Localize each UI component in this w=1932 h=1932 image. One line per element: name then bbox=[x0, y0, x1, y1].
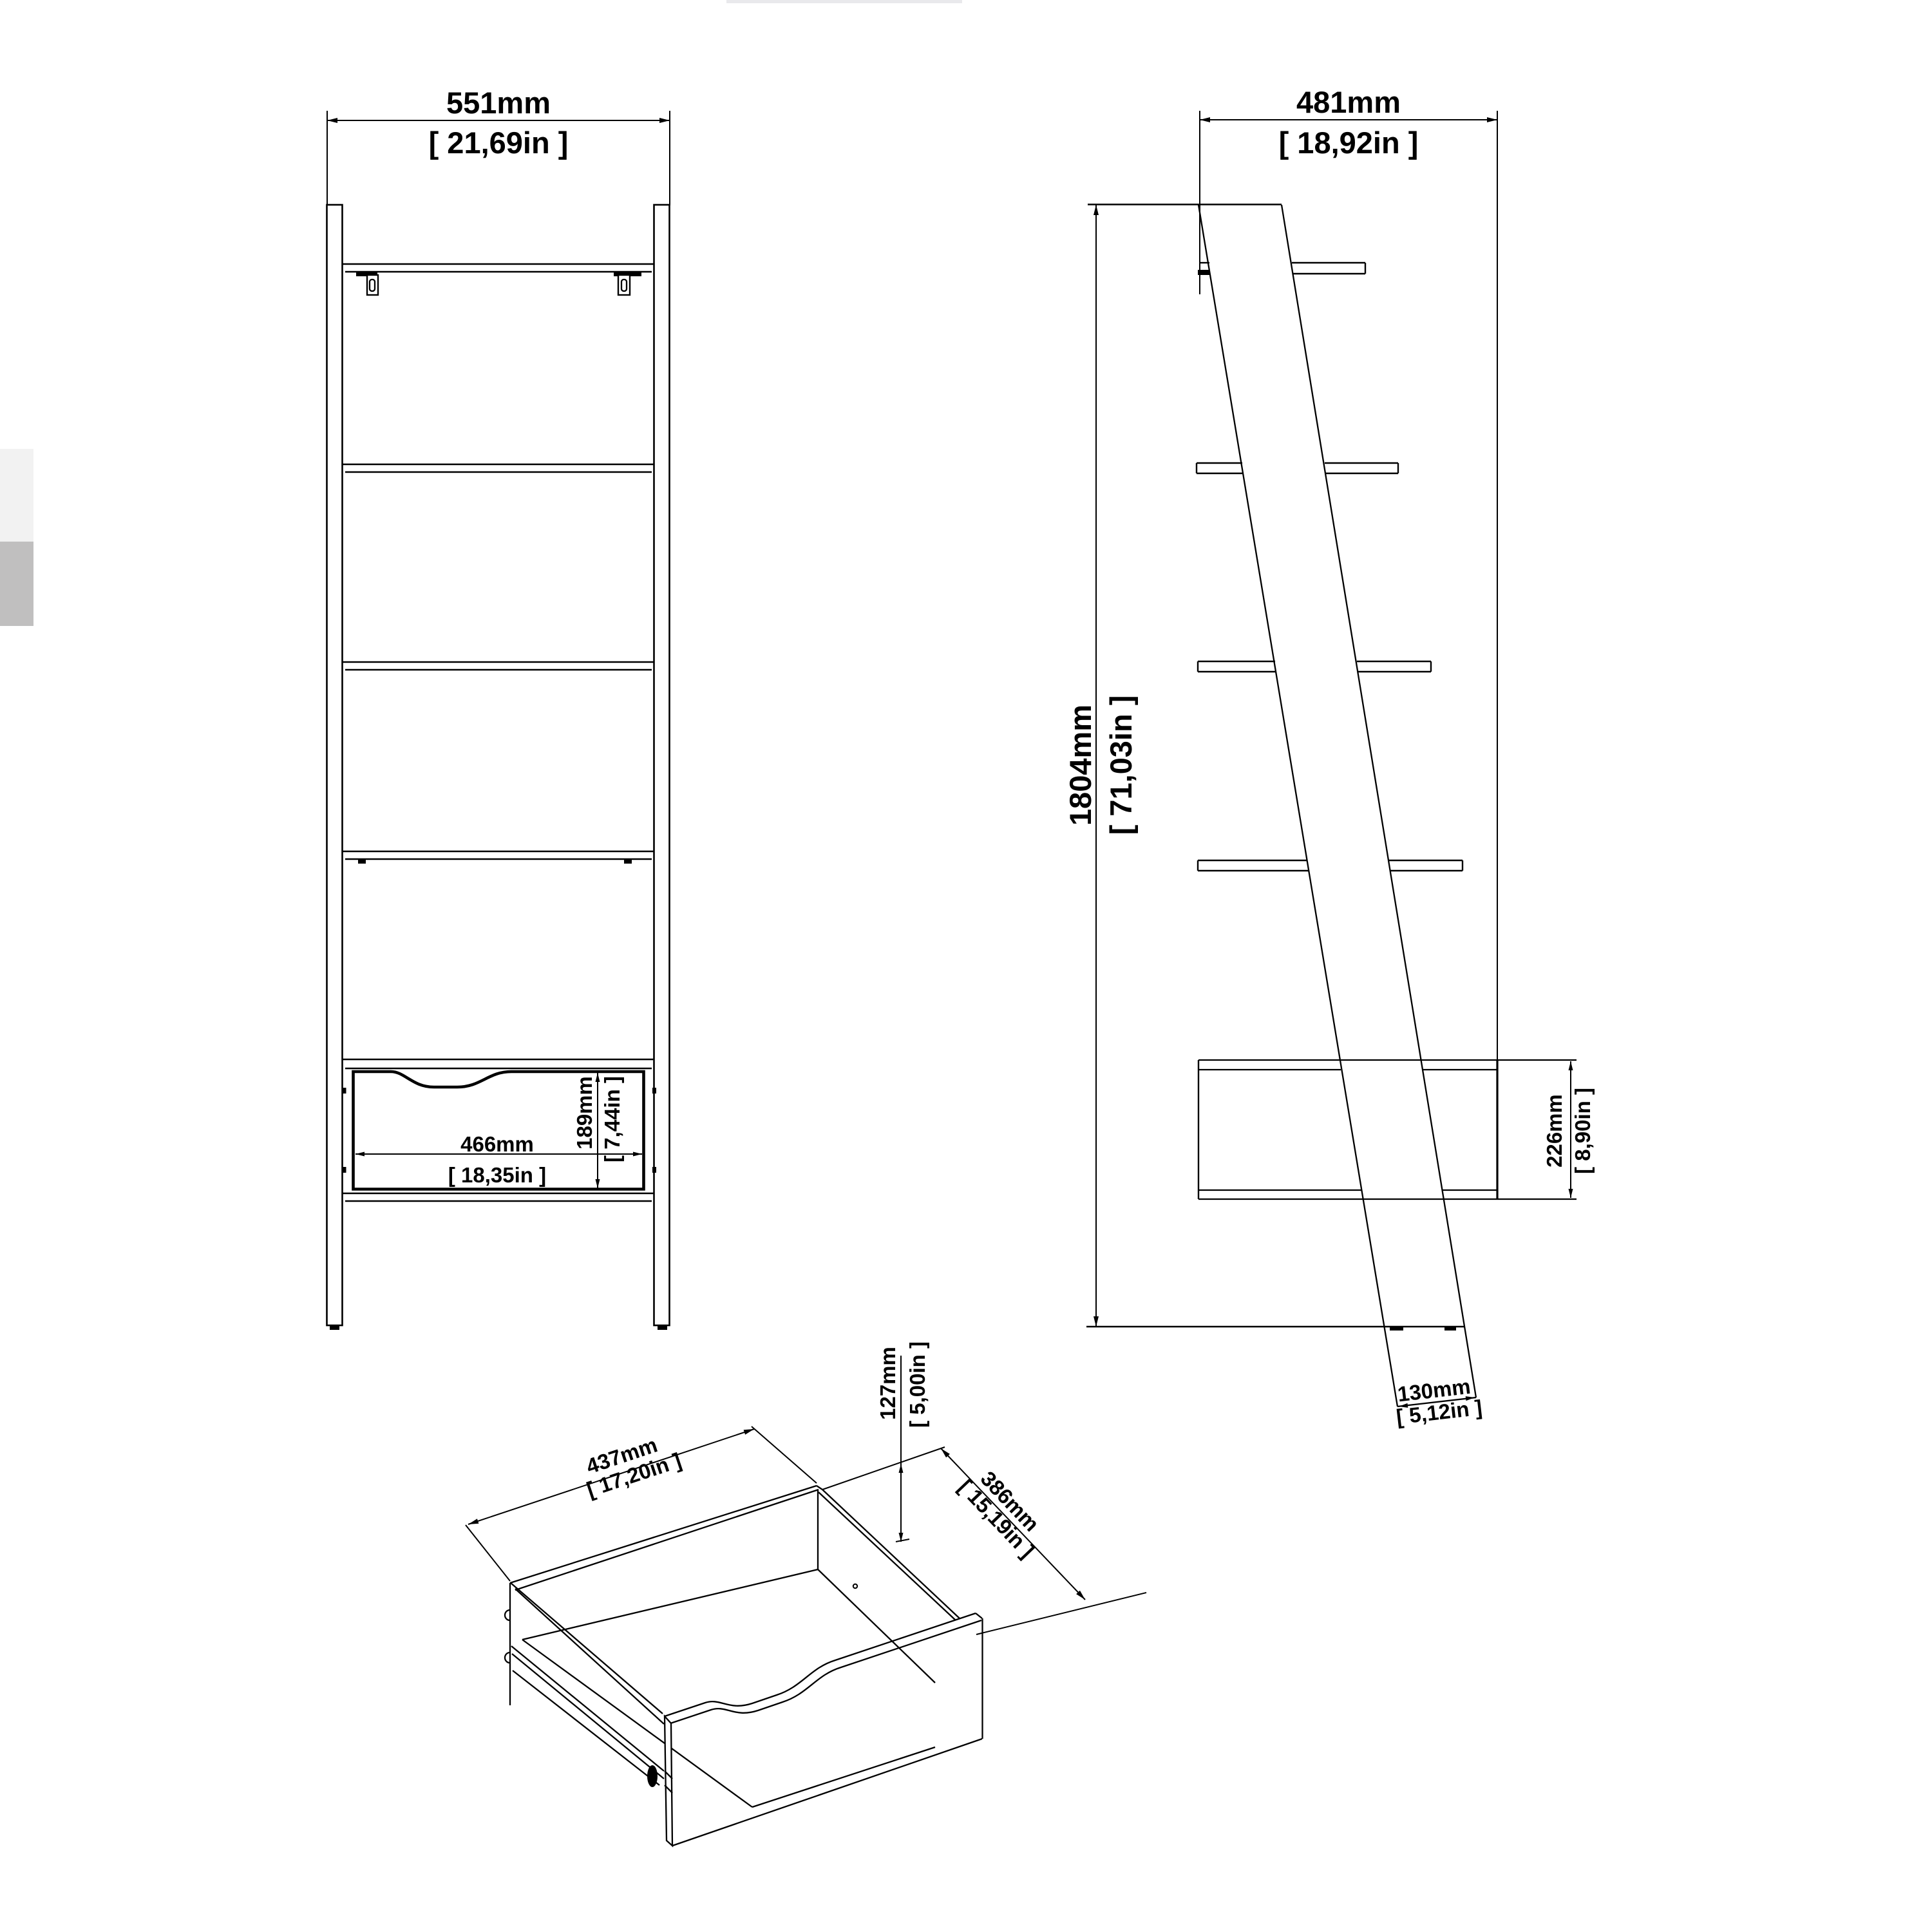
svg-text:551mm: 551mm bbox=[446, 86, 551, 120]
svg-text:466mm: 466mm bbox=[460, 1132, 534, 1156]
svg-text:[ 21,69in ]: [ 21,69in ] bbox=[429, 126, 569, 160]
svg-text:1804mm: 1804mm bbox=[1063, 705, 1097, 826]
svg-text:127mm: 127mm bbox=[876, 1347, 900, 1420]
svg-text:481mm: 481mm bbox=[1296, 85, 1401, 119]
svg-text:[ 18,35in ]: [ 18,35in ] bbox=[448, 1163, 546, 1187]
svg-text:[ 5,00in ]: [ 5,00in ] bbox=[905, 1341, 929, 1428]
svg-text:[ 7,44in ]: [ 7,44in ] bbox=[600, 1076, 624, 1162]
svg-text:226mm: 226mm bbox=[1542, 1094, 1566, 1168]
svg-text:[ 71,03in ]: [ 71,03in ] bbox=[1104, 696, 1138, 835]
svg-text:189mm: 189mm bbox=[573, 1076, 596, 1150]
svg-text:[ 8,90in ]: [ 8,90in ] bbox=[1571, 1088, 1595, 1174]
svg-text:[ 18,92in ]: [ 18,92in ] bbox=[1279, 126, 1419, 160]
